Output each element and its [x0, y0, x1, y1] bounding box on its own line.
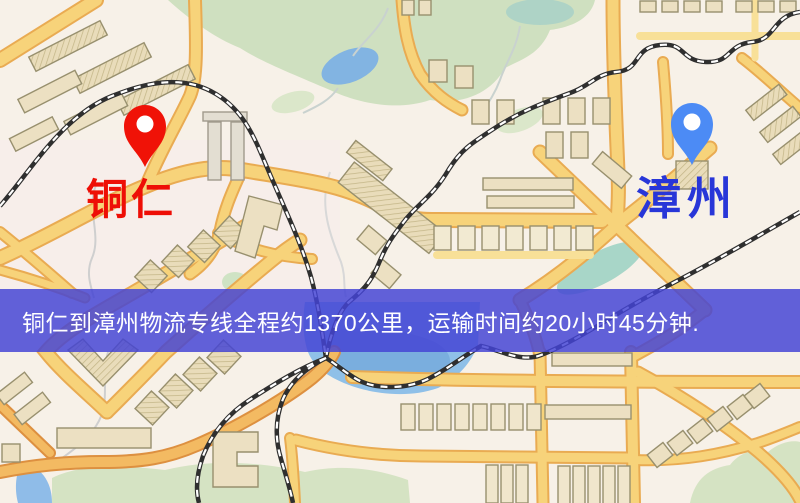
- info-banner-text: 铜仁到漳州物流专线全程约1370公里，运输时间约20小时45分钟.: [0, 304, 699, 338]
- map-art: [0, 0, 800, 503]
- map-canvas[interactable]: 铜仁 漳州 铜仁到漳州物流专线全程约1370公里，运输时间约20小时45分钟.: [0, 0, 800, 503]
- info-banner: 铜仁到漳州物流专线全程约1370公里，运输时间约20小时45分钟.: [0, 289, 800, 352]
- destination-label: 漳州: [636, 176, 738, 221]
- origin-label: 铜仁: [86, 179, 176, 221]
